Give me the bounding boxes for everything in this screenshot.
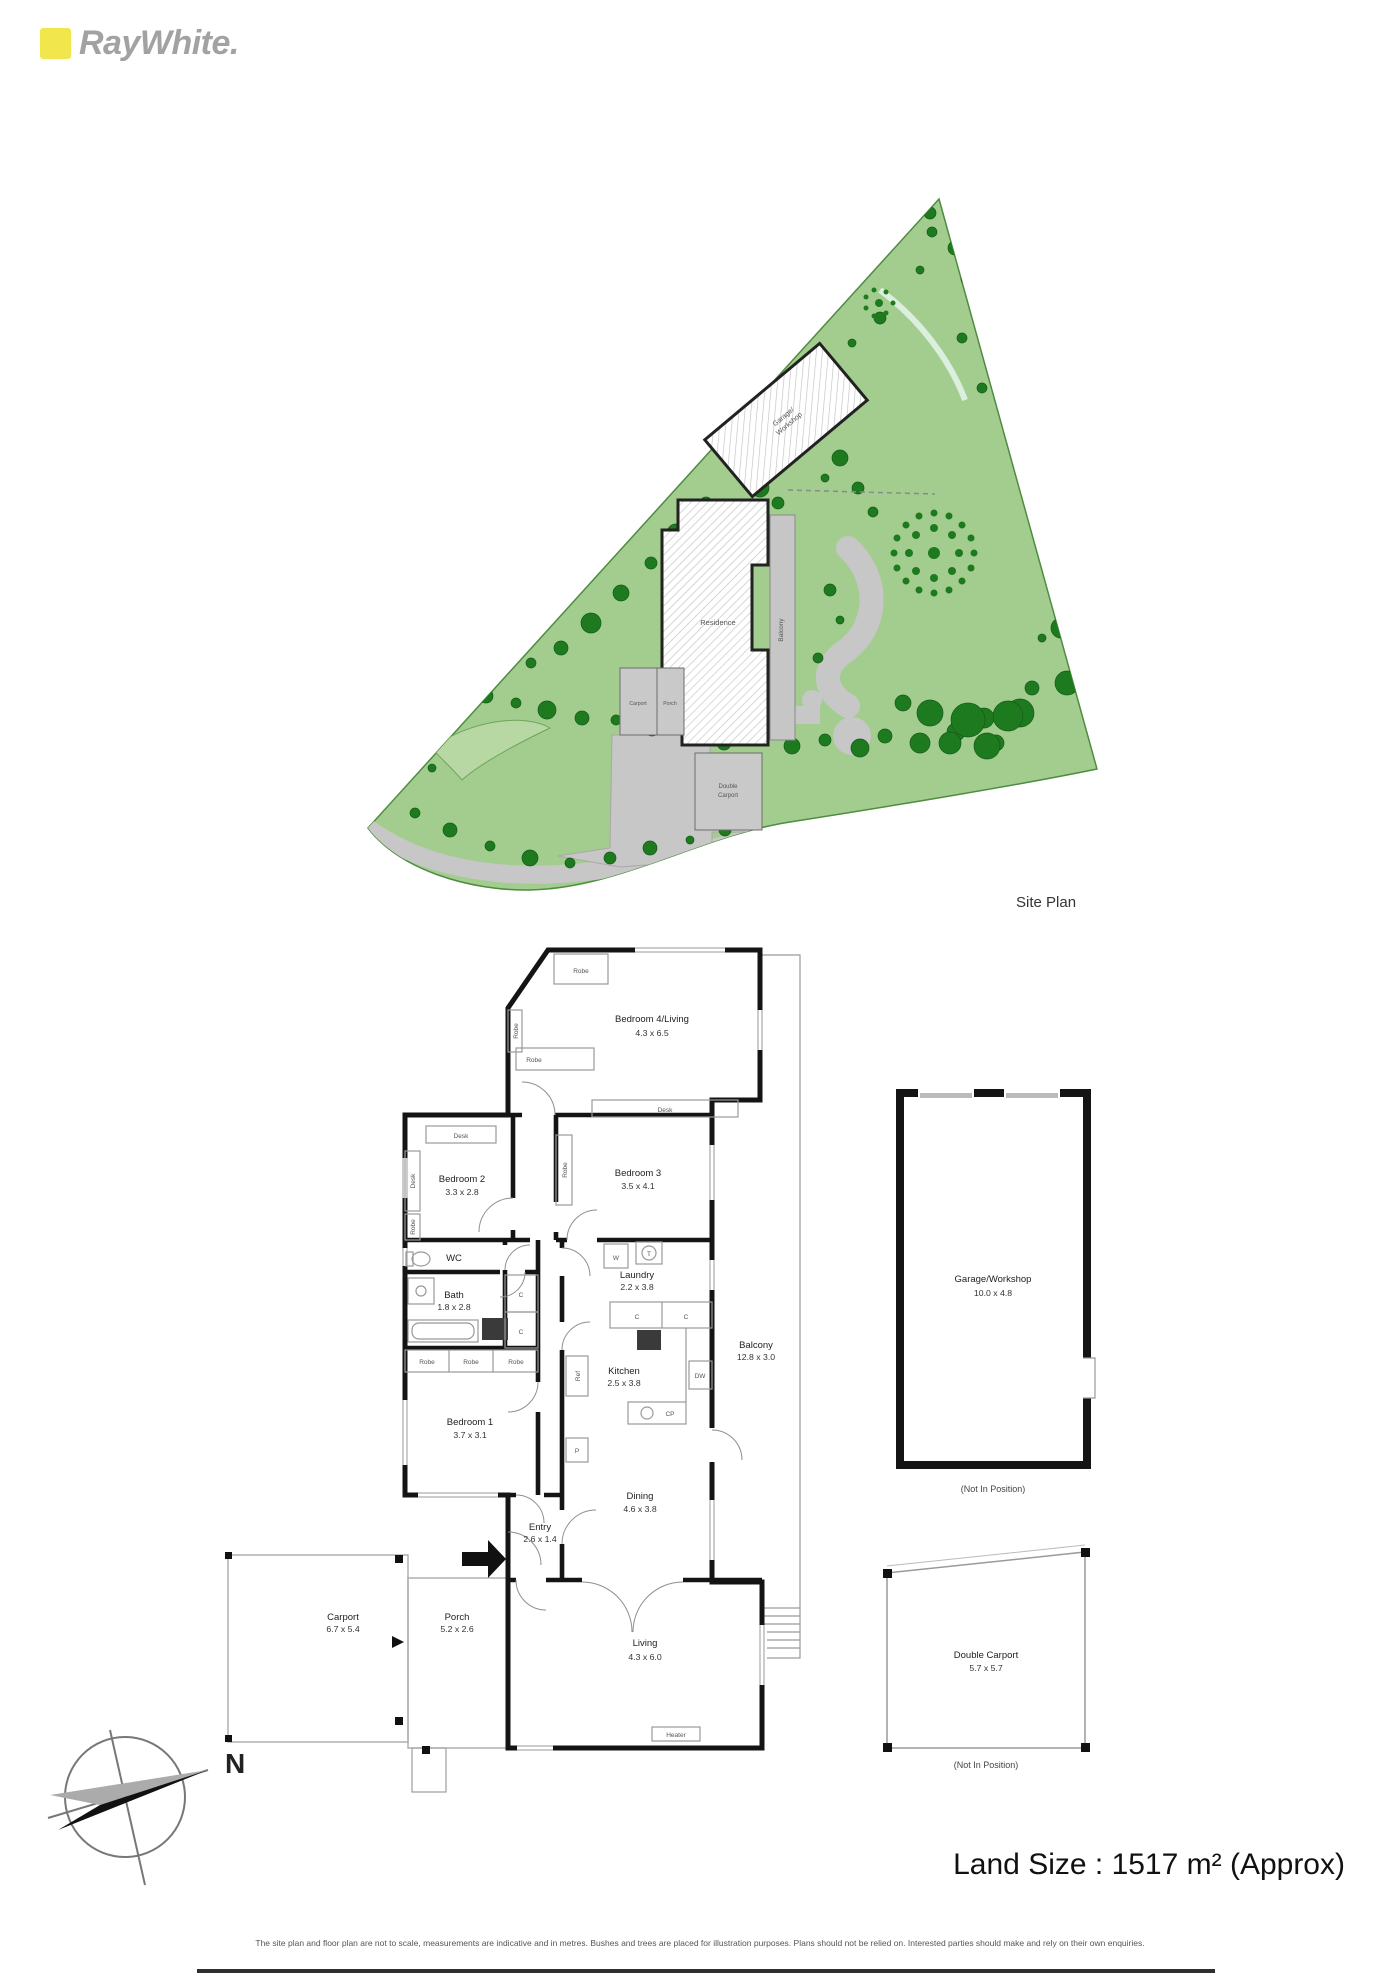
garage-note: (Not In Position) bbox=[961, 1484, 1026, 1494]
fridge-label: Ref bbox=[575, 1371, 582, 1381]
porch-dims: 5.2 x 2.6 bbox=[440, 1624, 473, 1634]
room-label-bedroom2: Bedroom 2 bbox=[439, 1174, 485, 1185]
robe-label: Robe bbox=[573, 968, 589, 975]
room-label-living: Living bbox=[633, 1638, 658, 1649]
cupboard-label: C bbox=[519, 1329, 524, 1336]
disclaimer-text: The site plan and floor plan are not to … bbox=[0, 1938, 1400, 1948]
robe-label: Robe bbox=[526, 1057, 542, 1064]
site-balcony-label: Balcony bbox=[778, 618, 785, 642]
carport: Carport 6.7 x 5.4 bbox=[225, 1552, 408, 1742]
dishwasher-label: DW bbox=[695, 1373, 707, 1380]
room-dims-dining: 4.6 x 3.8 bbox=[623, 1504, 656, 1514]
room-label-kitchen: Kitchen bbox=[608, 1366, 640, 1377]
robe-label: Robe bbox=[508, 1359, 524, 1366]
site-carport-label: Carport bbox=[629, 701, 647, 707]
room-label-bath: Bath bbox=[444, 1290, 464, 1301]
carport-dims: 6.7 x 5.4 bbox=[326, 1624, 359, 1634]
site-double-carport-label-2: Carport bbox=[718, 793, 738, 799]
site-porch-label: Porch bbox=[663, 701, 677, 707]
room-dims-double-carport: 5.7 x 5.7 bbox=[969, 1663, 1002, 1673]
carport-label: Carport bbox=[327, 1612, 359, 1623]
land-size-text: Land Size : 1517 m² (Approx) bbox=[953, 1848, 1345, 1882]
robe-label: Robe bbox=[463, 1359, 479, 1366]
room-dims-entry: 2.6 x 1.4 bbox=[523, 1534, 556, 1544]
double-carport-note: (Not In Position) bbox=[954, 1760, 1019, 1770]
room-dims-garage: 10.0 x 4.8 bbox=[974, 1288, 1012, 1298]
room-label-entry: Entry bbox=[529, 1522, 551, 1533]
double-carport: Double Carport 5.7 x 5.7 (Not In Positio… bbox=[883, 1545, 1090, 1770]
pantry-label: P bbox=[575, 1448, 579, 1455]
site-double-carport-label-1: Double bbox=[718, 784, 738, 790]
desk-label: Desk bbox=[410, 1173, 417, 1189]
robe-label: Robe bbox=[410, 1219, 417, 1235]
room-dims-bedroom4: 4.3 x 6.5 bbox=[635, 1028, 668, 1038]
room-label-bedroom4: Bedroom 4/Living bbox=[615, 1014, 689, 1025]
logo-text: RayWhite. bbox=[79, 24, 239, 63]
robe-label: Robe bbox=[513, 1023, 520, 1039]
room-label-dining: Dining bbox=[627, 1491, 654, 1502]
desk-label: Desk bbox=[454, 1133, 470, 1140]
room-dims-bedroom2: 3.3 x 2.8 bbox=[445, 1187, 478, 1197]
robe-label: Robe bbox=[562, 1162, 569, 1178]
room-label-bedroom3: Bedroom 3 bbox=[615, 1168, 661, 1179]
room-dims-laundry: 2.2 x 3.8 bbox=[620, 1282, 653, 1292]
cooktop-label: CP bbox=[665, 1411, 674, 1418]
page: RayWhite. bbox=[0, 0, 1400, 1982]
trough-label: T bbox=[647, 1251, 651, 1258]
room-label-laundry: Laundry bbox=[620, 1270, 655, 1281]
logo-square-icon bbox=[40, 28, 71, 59]
compass: N bbox=[40, 1725, 260, 1900]
floor-plan: Balcony 12.8 x 3.0 Carport 6.7 x 5.4 Por… bbox=[200, 930, 1150, 1810]
ray-white-logo: RayWhite. bbox=[40, 24, 239, 63]
room-label-bedroom1: Bedroom 1 bbox=[447, 1417, 493, 1428]
site-residence-label: Residence bbox=[700, 618, 735, 627]
room-label-garage: Garage/Workshop bbox=[955, 1274, 1032, 1285]
heater-label: Heater bbox=[666, 1732, 686, 1739]
washer-label: W bbox=[613, 1255, 620, 1262]
balcony-dims: 12.8 x 3.0 bbox=[737, 1352, 775, 1362]
cupboard-label: C bbox=[519, 1292, 524, 1299]
bottom-rule bbox=[197, 1969, 1215, 1973]
room-dims-bedroom1: 3.7 x 3.1 bbox=[453, 1430, 486, 1440]
room-label-wc: WC bbox=[446, 1253, 462, 1264]
site-plan-caption: Site Plan bbox=[1016, 894, 1076, 911]
porch: Porch 5.2 x 2.6 bbox=[408, 1578, 508, 1792]
site-double-carport bbox=[695, 753, 762, 830]
entry-arrow-icon bbox=[462, 1540, 506, 1578]
desk-label: Desk bbox=[658, 1107, 674, 1114]
robe-label: Robe bbox=[419, 1359, 435, 1366]
site-plan: Garage/ Workshop Balcony Residence Carpo… bbox=[320, 160, 1110, 920]
room-label-double-carport: Double Carport bbox=[954, 1650, 1019, 1661]
cupboard-label: C bbox=[684, 1314, 689, 1321]
porch-label: Porch bbox=[445, 1612, 470, 1623]
cupboard-label: C bbox=[635, 1314, 640, 1321]
room-dims-bath: 1.8 x 2.8 bbox=[437, 1302, 470, 1312]
room-dims-kitchen: 2.5 x 3.8 bbox=[607, 1378, 640, 1388]
balcony-label: Balcony bbox=[739, 1340, 773, 1351]
room-dims-bedroom3: 3.5 x 4.1 bbox=[621, 1181, 654, 1191]
room-dims-living: 4.3 x 6.0 bbox=[628, 1652, 661, 1662]
garage-workshop: Garage/Workshop 10.0 x 4.8 (Not In Posit… bbox=[900, 1085, 1095, 1494]
north-label: N bbox=[225, 1748, 245, 1779]
